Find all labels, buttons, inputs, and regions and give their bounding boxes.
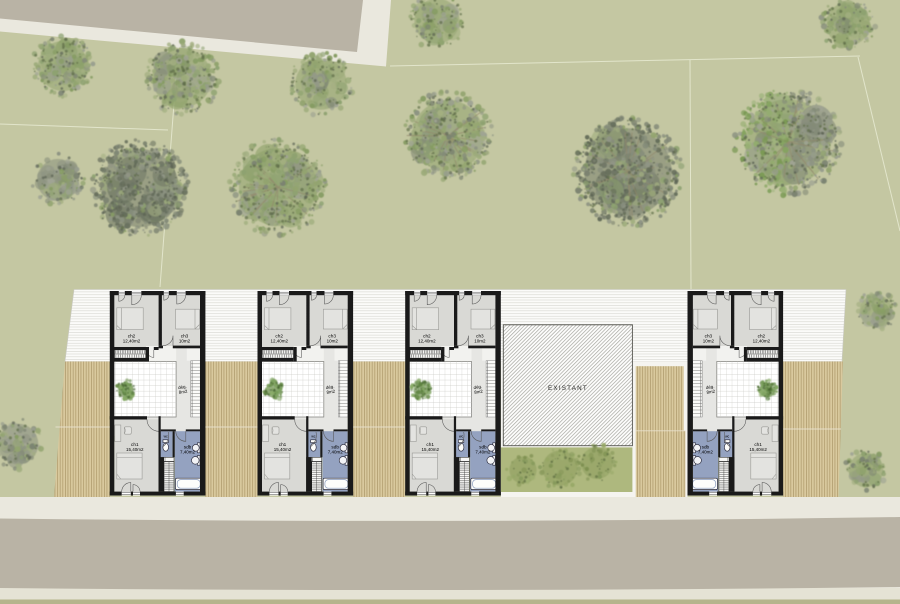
svg-text:7,40m2: 7,40m2 — [328, 450, 344, 455]
svg-text:wc: wc — [311, 434, 315, 438]
svg-text:12,40m2: 12,40m2 — [270, 339, 288, 344]
svg-text:EXISTANT: EXISTANT — [548, 385, 588, 392]
svg-text:7,40m2: 7,40m2 — [698, 450, 714, 455]
svg-text:12,40m2: 12,40m2 — [123, 339, 141, 344]
svg-text:wc: wc — [164, 434, 168, 438]
svg-text:7,40m2: 7,40m2 — [475, 450, 491, 455]
svg-text:10m2: 10m2 — [474, 339, 486, 344]
svg-text:12,40m2: 12,40m2 — [418, 339, 436, 344]
svg-text:15,40m2: 15,40m2 — [421, 447, 439, 452]
svg-text:15,40m2: 15,40m2 — [749, 447, 767, 452]
svg-text:15,40m2: 15,40m2 — [274, 447, 292, 452]
svg-text:7,40m2: 7,40m2 — [180, 450, 196, 455]
svg-text:10m2: 10m2 — [327, 339, 339, 344]
svg-text:wc: wc — [725, 434, 729, 438]
svg-text:wc: wc — [459, 434, 463, 438]
svg-text:12,40m2: 12,40m2 — [753, 339, 771, 344]
svg-text:10m2: 10m2 — [179, 339, 191, 344]
svg-text:10m2: 10m2 — [703, 339, 715, 344]
svg-text:15,40m2: 15,40m2 — [126, 447, 144, 452]
